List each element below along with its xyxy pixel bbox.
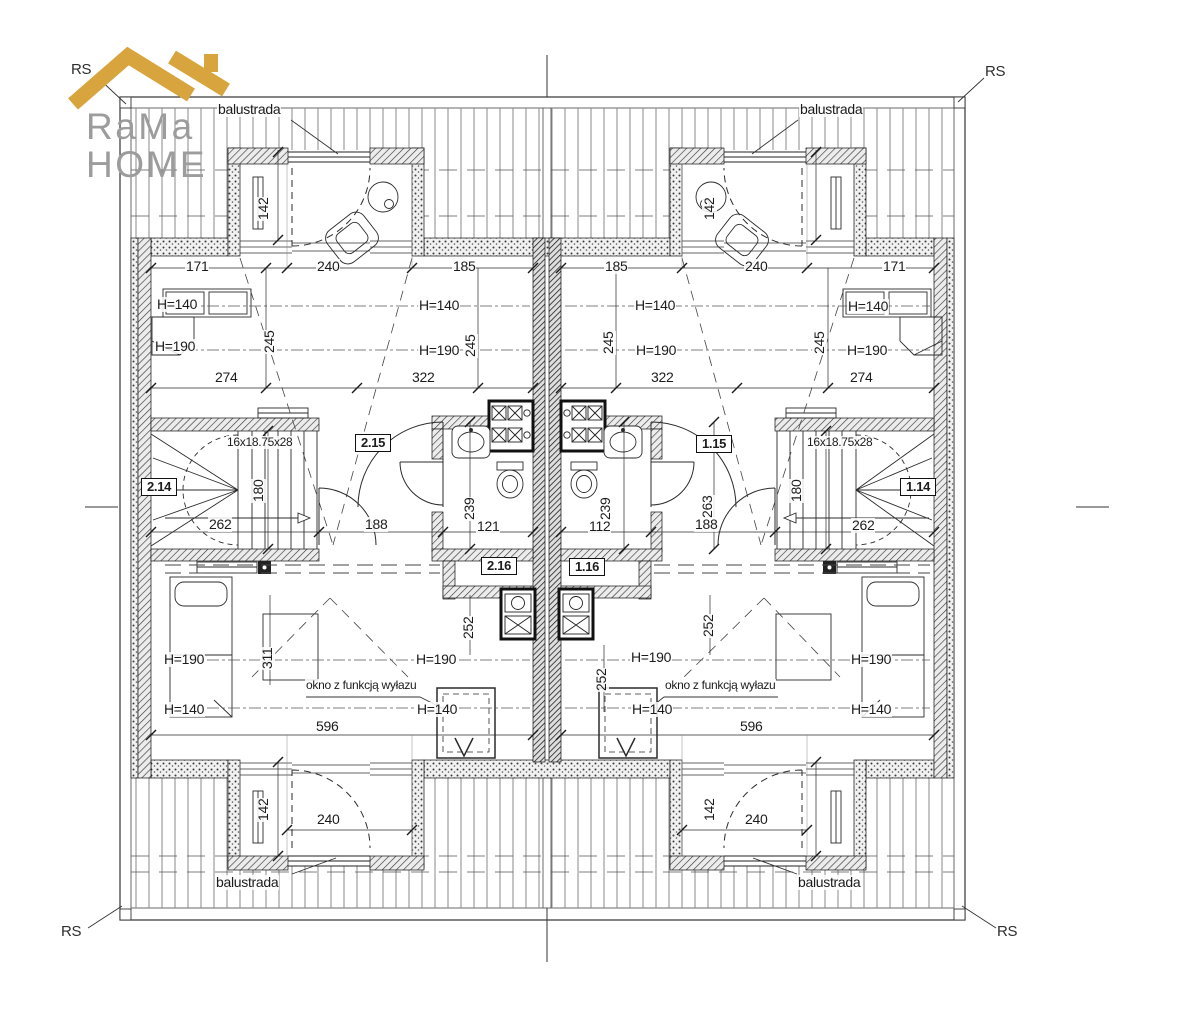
room-number-2-15: 2.15 [355,434,391,452]
dim-180-left: 180 [251,479,266,503]
h140-room1-left: H=140 [634,298,676,313]
dim-274-right: 274 [849,370,873,385]
dim-274-left: 274 [214,370,238,385]
h140-room3-left: H=140 [631,702,673,717]
dim-252-a: 252 [461,616,476,640]
dim-596-left: 596 [315,719,339,734]
dim-171-right: 171 [882,259,906,274]
dim-252-b: 252 [594,668,609,692]
h140-room1-right: H=140 [847,299,889,314]
dim-142-top-right: 142 [702,197,717,221]
dim-142-bottom-left: 142 [256,798,271,822]
dim-245-b: 245 [463,334,478,358]
dim-188-left: 188 [364,517,388,532]
room-number-1-14: 1.14 [900,478,936,496]
h140-room4-left: H=140 [163,702,205,717]
h190-room2-left: H=190 [154,339,196,354]
h190-room4-left: H=190 [163,652,205,667]
dim-240-top-left: 240 [316,259,340,274]
room-number-2-16: 2.16 [481,557,517,575]
dim-322-left: 322 [411,370,435,385]
dim-262-left: 262 [208,517,232,532]
balustrada-top-left: balustrada [217,102,281,117]
dim-245-a: 245 [262,330,277,354]
logo-wordmark-line1: RaMa [86,108,195,145]
floorplan-screenshot: RSRSRSRSbalustradabalustradabalustradaba… [0,0,1200,1013]
dim-112: 112 [588,519,611,534]
dim-596-right: 596 [739,719,763,734]
room-number-1-15: 1.15 [696,435,732,453]
roof-hatch-note-left: okno z funkcją wyłazu [305,679,417,692]
rs-marker-bottom-right: RS [996,924,1018,940]
h190-room3-left: H=190 [630,650,672,665]
h140-room3-right: H=140 [850,702,892,717]
dim-262-right: 262 [851,518,875,533]
dim-239-left: 239 [462,497,477,521]
h190-room4-right: H=190 [415,652,457,667]
balustrada-top-right: balustrada [799,102,863,117]
rs-marker-bottom-left: RS [60,924,82,940]
h190-room3-right: H=190 [850,652,892,667]
balustrada-bottom-left: balustrada [215,875,279,890]
dim-240-bottom-left: 240 [316,812,340,827]
dim-180-right: 180 [789,479,804,503]
h140-room2-left: H=140 [156,297,198,312]
dim-142-top-left: 142 [256,197,271,221]
logo-wordmark-line2: HOME [86,146,207,183]
dim-171-left: 171 [185,259,209,274]
stair-spec-left: 16x18.75x28 [226,436,293,449]
dim-142-bottom-right: 142 [702,798,717,822]
dim-252-c: 252 [701,614,716,638]
dim-322-right: 322 [650,370,674,385]
room-number-1-16: 1.16 [569,558,605,576]
dim-185-right: 185 [604,259,628,274]
h140-room4-right: H=140 [416,702,458,717]
dim-311: 311 [260,647,275,670]
stair-spec-right: 16x18.75x28 [806,436,873,449]
dim-263-right: 263 [700,495,715,519]
h140-room2-right: H=140 [418,298,460,313]
rs-marker-top-right: RS [984,64,1006,80]
roof-hatch-note-right: okno z funkcją wyłazu [664,679,776,692]
dim-245-c: 245 [601,331,616,355]
dim-240-top-right: 240 [744,259,768,274]
h190-room2-right: H=190 [418,343,460,358]
h190-room1-right: H=190 [846,343,888,358]
h190-room1-left: H=190 [635,343,677,358]
balustrada-bottom-right: balustrada [797,875,861,890]
dim-240-bottom-right: 240 [744,812,768,827]
rs-marker-top-left: RS [70,62,92,78]
dim-188-right: 188 [694,517,718,532]
dim-245-d: 245 [812,331,827,355]
dim-239-right: 239 [598,497,613,521]
room-number-2-14: 2.14 [141,478,177,496]
dim-121: 121 [476,519,500,534]
dim-185-left: 185 [452,259,476,274]
